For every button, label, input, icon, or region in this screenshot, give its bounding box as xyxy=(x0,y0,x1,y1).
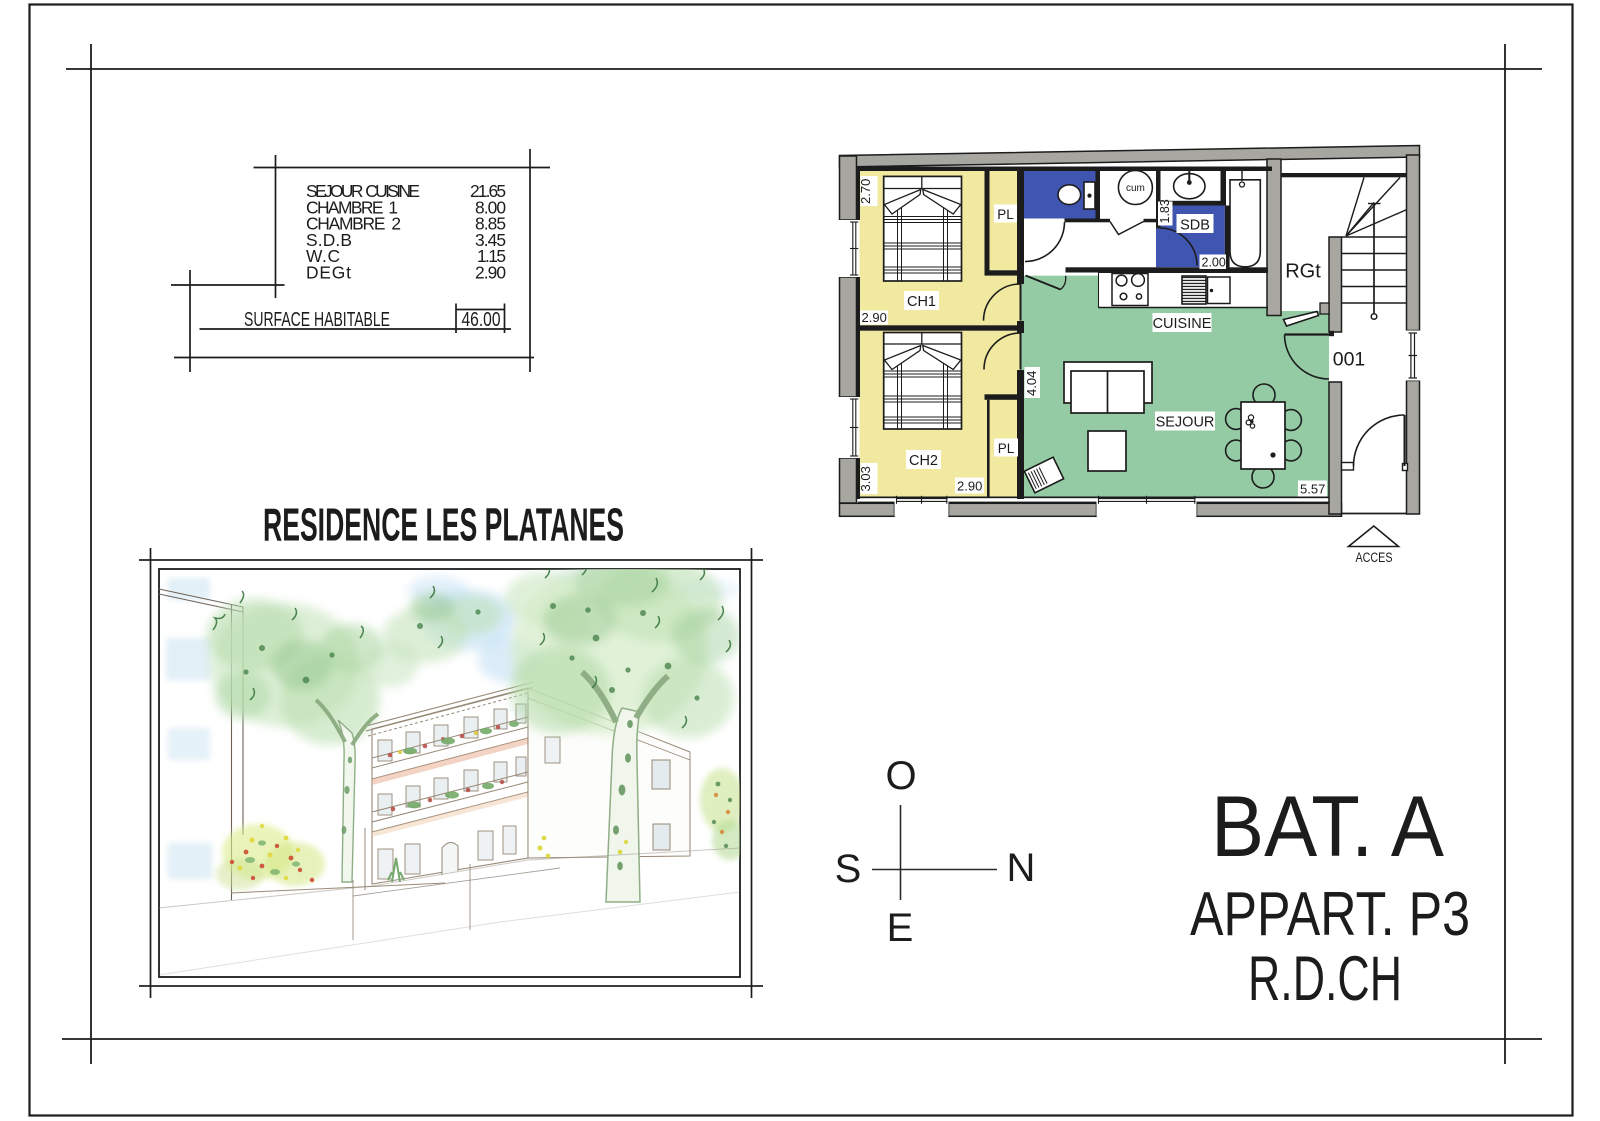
svg-text:DEGt: DEGt xyxy=(306,263,351,283)
svg-text:CUISINE: CUISINE xyxy=(1153,316,1212,332)
svg-text:R.D.CH: R.D.CH xyxy=(1248,944,1402,1014)
svg-text:E: E xyxy=(887,906,914,950)
svg-text:2.90: 2.90 xyxy=(862,310,887,325)
svg-text:S: S xyxy=(835,847,862,891)
svg-text:2.90: 2.90 xyxy=(475,263,506,283)
svg-text:SDB: SDB xyxy=(1180,218,1210,234)
svg-text:cum: cum xyxy=(1126,183,1145,194)
svg-text:PL: PL xyxy=(997,207,1014,222)
svg-text:1.83: 1.83 xyxy=(1158,199,1172,223)
svg-text:46.00: 46.00 xyxy=(462,308,501,331)
svg-text:4.04: 4.04 xyxy=(1024,371,1039,396)
svg-text:3.03: 3.03 xyxy=(858,466,873,491)
svg-text:N: N xyxy=(1007,846,1036,890)
svg-text:SEJOUR: SEJOUR xyxy=(1156,415,1215,431)
svg-text:CH1: CH1 xyxy=(907,294,936,310)
svg-text:2.70: 2.70 xyxy=(858,179,873,204)
svg-text:5.57: 5.57 xyxy=(1300,482,1325,497)
svg-text:SURFACE HABITABLE: SURFACE HABITABLE xyxy=(244,308,390,331)
svg-text:001: 001 xyxy=(1333,349,1366,371)
svg-text:PL: PL xyxy=(998,441,1015,456)
svg-text:2.90: 2.90 xyxy=(957,479,982,494)
svg-text:2.00: 2.00 xyxy=(1202,256,1226,270)
svg-text:BAT. A: BAT. A xyxy=(1211,779,1445,875)
svg-text:APPART. P3: APPART. P3 xyxy=(1190,880,1470,949)
svg-text:RGt: RGt xyxy=(1285,261,1321,283)
svg-text:CH2: CH2 xyxy=(909,453,938,469)
svg-text:RESIDENCE LES PLATANES: RESIDENCE LES PLATANES xyxy=(263,499,624,551)
svg-text:ACCES: ACCES xyxy=(1356,550,1393,565)
svg-text:O: O xyxy=(885,754,916,798)
